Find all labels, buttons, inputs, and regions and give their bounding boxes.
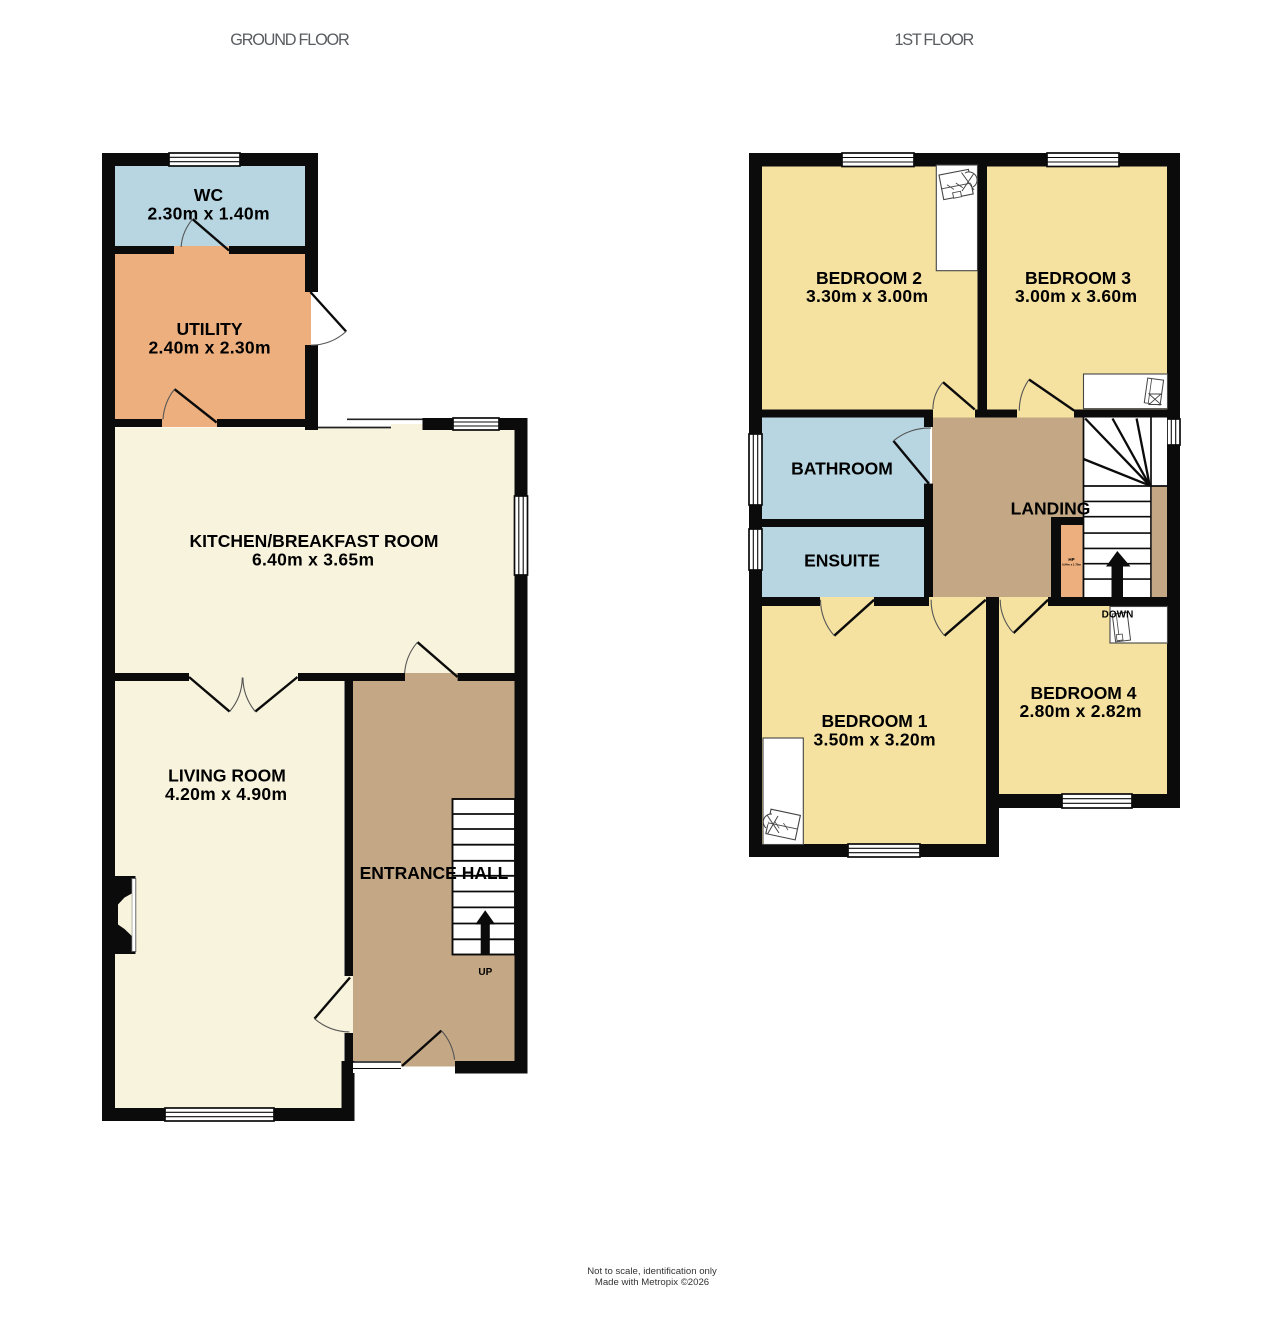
svg-text:0.94m x 1.70m: 0.94m x 1.70m xyxy=(1062,563,1081,567)
svg-text:1ST FLOOR: 1ST FLOOR xyxy=(895,31,975,49)
svg-text:ENTRANCE HALL: ENTRANCE HALL xyxy=(360,863,509,883)
svg-text:DOWN: DOWN xyxy=(1102,610,1134,621)
svg-text:2.30m x 1.40m: 2.30m x 1.40m xyxy=(148,204,270,224)
svg-text:2.40m x 2.30m: 2.40m x 2.30m xyxy=(149,338,271,358)
svg-text:4.20m x 4.90m: 4.20m x 4.90m xyxy=(165,784,287,804)
svg-text:BEDROOM 4: BEDROOM 4 xyxy=(1031,683,1137,703)
svg-text:ENSUITE: ENSUITE xyxy=(804,551,880,571)
svg-text:UP: UP xyxy=(478,967,492,978)
svg-text:Not to scale, identification o: Not to scale, identification only xyxy=(587,1266,717,1277)
svg-text:HP: HP xyxy=(1068,557,1074,562)
svg-text:BEDROOM 1: BEDROOM 1 xyxy=(822,711,928,731)
svg-text:Made with Metropix ©2026: Made with Metropix ©2026 xyxy=(595,1277,709,1288)
svg-text:LIVING ROOM: LIVING ROOM xyxy=(168,766,286,786)
svg-text:GROUND FLOOR: GROUND FLOOR xyxy=(230,31,350,49)
svg-text:BATHROOM: BATHROOM xyxy=(791,459,893,479)
svg-text:KITCHEN/BREAKFAST ROOM: KITCHEN/BREAKFAST ROOM xyxy=(190,531,439,551)
svg-text:BEDROOM 3: BEDROOM 3 xyxy=(1025,268,1131,288)
svg-text:WC: WC xyxy=(194,185,224,205)
svg-text:3.00m x 3.60m: 3.00m x 3.60m xyxy=(1015,286,1137,306)
svg-text:3.30m x 3.00m: 3.30m x 3.00m xyxy=(806,286,928,306)
svg-text:3.50m x 3.20m: 3.50m x 3.20m xyxy=(814,730,936,750)
svg-text:BEDROOM 2: BEDROOM 2 xyxy=(816,268,922,288)
svg-text:LANDING: LANDING xyxy=(1011,499,1091,519)
svg-text:6.40m x 3.65m: 6.40m x 3.65m xyxy=(252,550,374,570)
svg-text:UTILITY: UTILITY xyxy=(176,319,242,339)
svg-text:2.80m x 2.82m: 2.80m x 2.82m xyxy=(1020,701,1142,721)
